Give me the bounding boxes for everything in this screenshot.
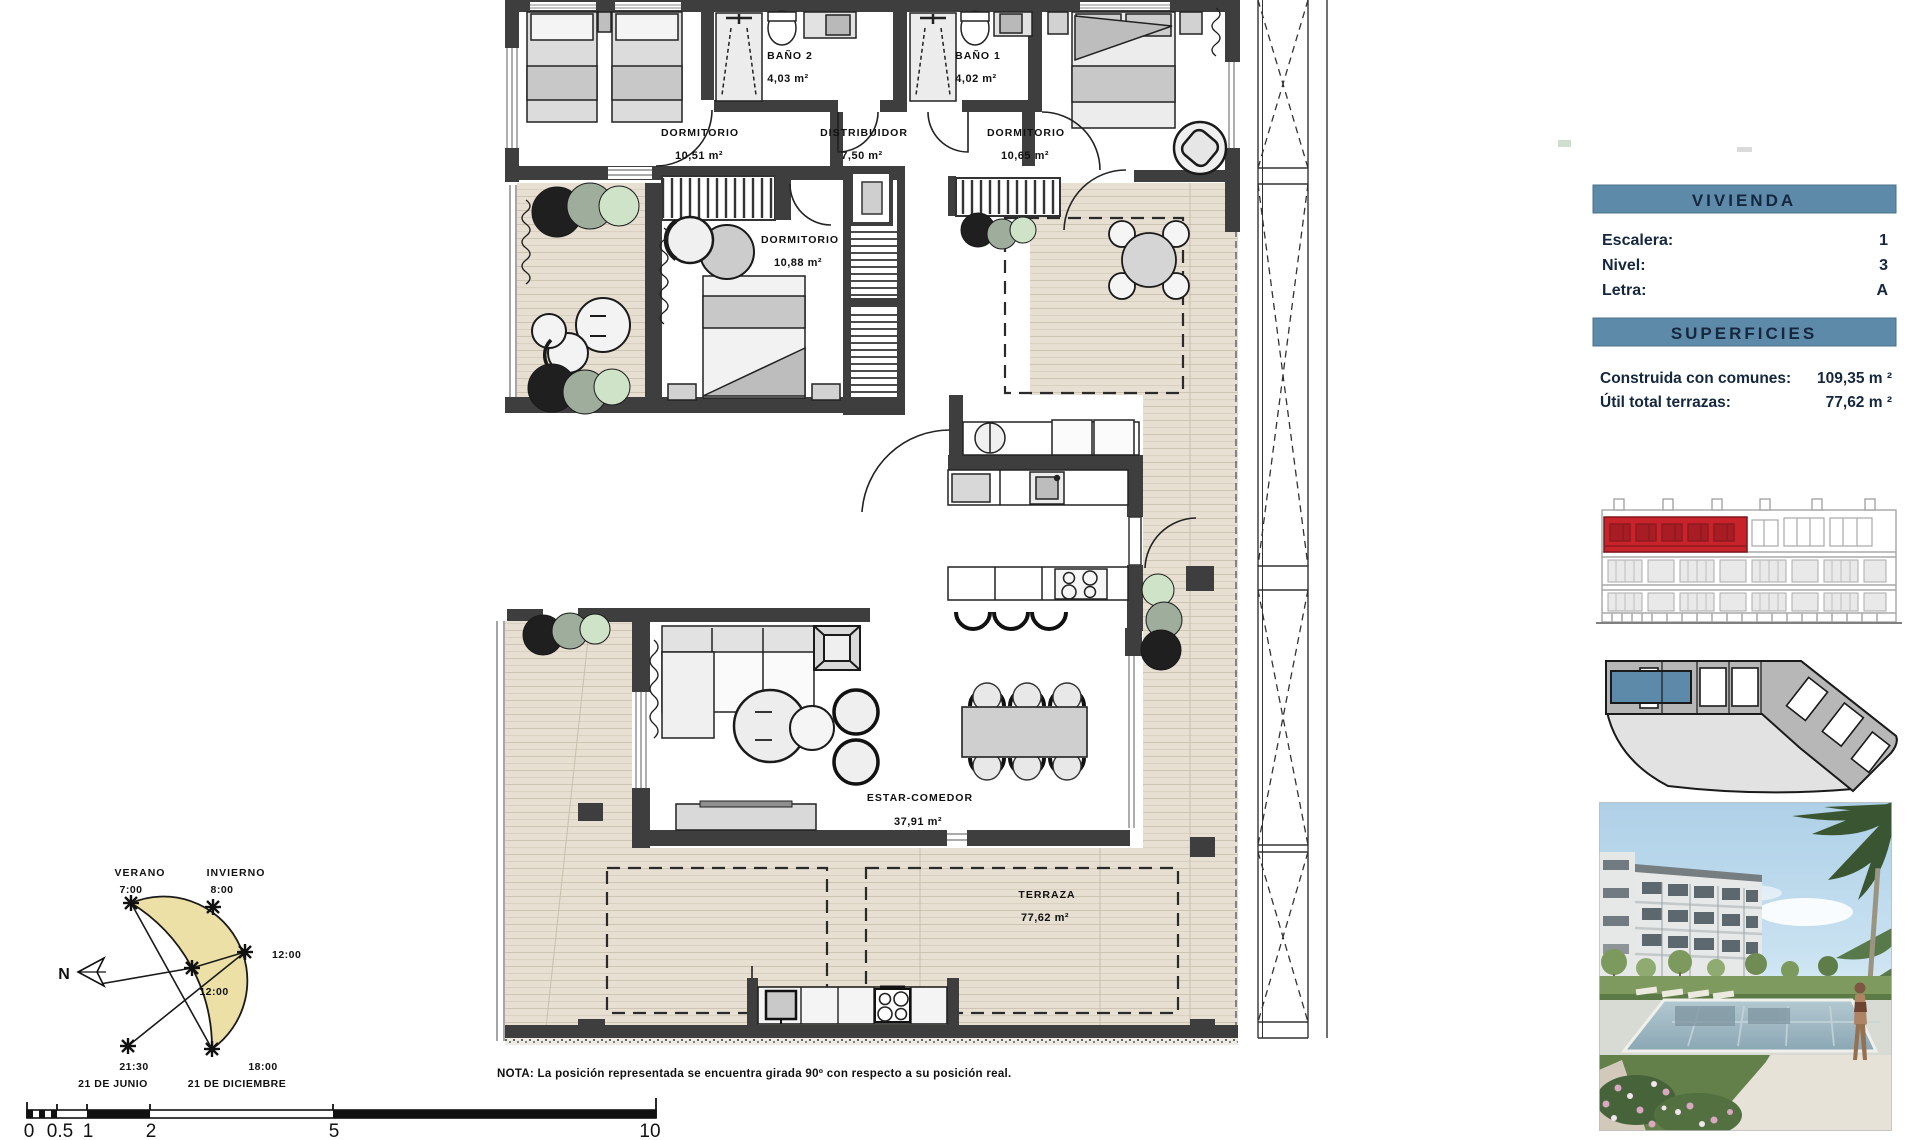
svg-text:Escalera:: Escalera: — [1602, 232, 1673, 249]
svg-text:1: 1 — [1879, 232, 1888, 249]
svg-text:DORMITORIO: DORMITORIO — [761, 234, 839, 246]
svg-text:DORMITORIO: DORMITORIO — [987, 127, 1065, 139]
svg-text:1: 1 — [83, 1121, 94, 1140]
svg-text:DORMITORIO: DORMITORIO — [661, 127, 739, 139]
svg-text:INVIERNO: INVIERNO — [207, 867, 266, 879]
svg-text:12:00: 12:00 — [272, 949, 301, 961]
svg-text:21 DE JUNIO: 21 DE JUNIO — [78, 1078, 148, 1090]
svg-text:2: 2 — [146, 1121, 157, 1140]
svg-text:Nivel:: Nivel: — [1602, 257, 1646, 274]
svg-text:Útil total terrazas:: Útil total terrazas: — [1600, 393, 1731, 411]
svg-text:Construida con comunes:: Construida con comunes: — [1600, 370, 1791, 387]
svg-text:77,62 m ²: 77,62 m ² — [1826, 394, 1892, 411]
svg-text:NOTA: La posición representada: NOTA: La posición representada se encuen… — [497, 1068, 1012, 1080]
svg-text:77,62 m²: 77,62 m² — [1021, 912, 1069, 924]
svg-text:3: 3 — [1879, 257, 1888, 274]
svg-text:109,35 m ²: 109,35 m ² — [1817, 370, 1892, 387]
svg-text:37,91 m²: 37,91 m² — [894, 816, 942, 828]
svg-text:VIVIENDA: VIVIENDA — [1692, 191, 1796, 210]
svg-text:TERRAZA: TERRAZA — [1018, 889, 1075, 901]
svg-text:0: 0 — [24, 1121, 35, 1140]
svg-text:10,65 m²: 10,65 m² — [1001, 150, 1049, 162]
svg-text:12:00: 12:00 — [199, 986, 228, 998]
svg-text:8:00: 8:00 — [210, 884, 233, 896]
svg-text:4,03 m²: 4,03 m² — [767, 73, 808, 85]
svg-text:4,02 m²: 4,02 m² — [955, 73, 996, 85]
svg-text:18:00: 18:00 — [248, 1061, 277, 1073]
svg-text:10,51 m²: 10,51 m² — [675, 150, 723, 162]
svg-text:BAÑO 1: BAÑO 1 — [955, 49, 1001, 62]
svg-text:Letra:: Letra: — [1602, 282, 1646, 299]
svg-text:DISTRIBUIDOR: DISTRIBUIDOR — [820, 127, 908, 139]
svg-text:SUPERFICIES: SUPERFICIES — [1671, 324, 1817, 343]
svg-text:7,50 m²: 7,50 m² — [841, 150, 882, 162]
svg-text:21:30: 21:30 — [119, 1061, 148, 1073]
svg-text:N: N — [58, 966, 70, 983]
svg-text:5: 5 — [329, 1121, 340, 1140]
svg-text:7:00: 7:00 — [119, 884, 142, 896]
svg-text:BAÑO 2: BAÑO 2 — [767, 49, 813, 62]
svg-text:0.5: 0.5 — [47, 1121, 73, 1140]
svg-text:ESTAR-COMEDOR: ESTAR-COMEDOR — [867, 792, 973, 804]
svg-text:10: 10 — [639, 1121, 660, 1140]
svg-text:10,88 m²: 10,88 m² — [774, 257, 822, 269]
svg-text:21 DE DICIEMBRE: 21 DE DICIEMBRE — [188, 1078, 287, 1090]
svg-text:A: A — [1876, 282, 1888, 299]
svg-text:VERANO: VERANO — [115, 867, 166, 879]
